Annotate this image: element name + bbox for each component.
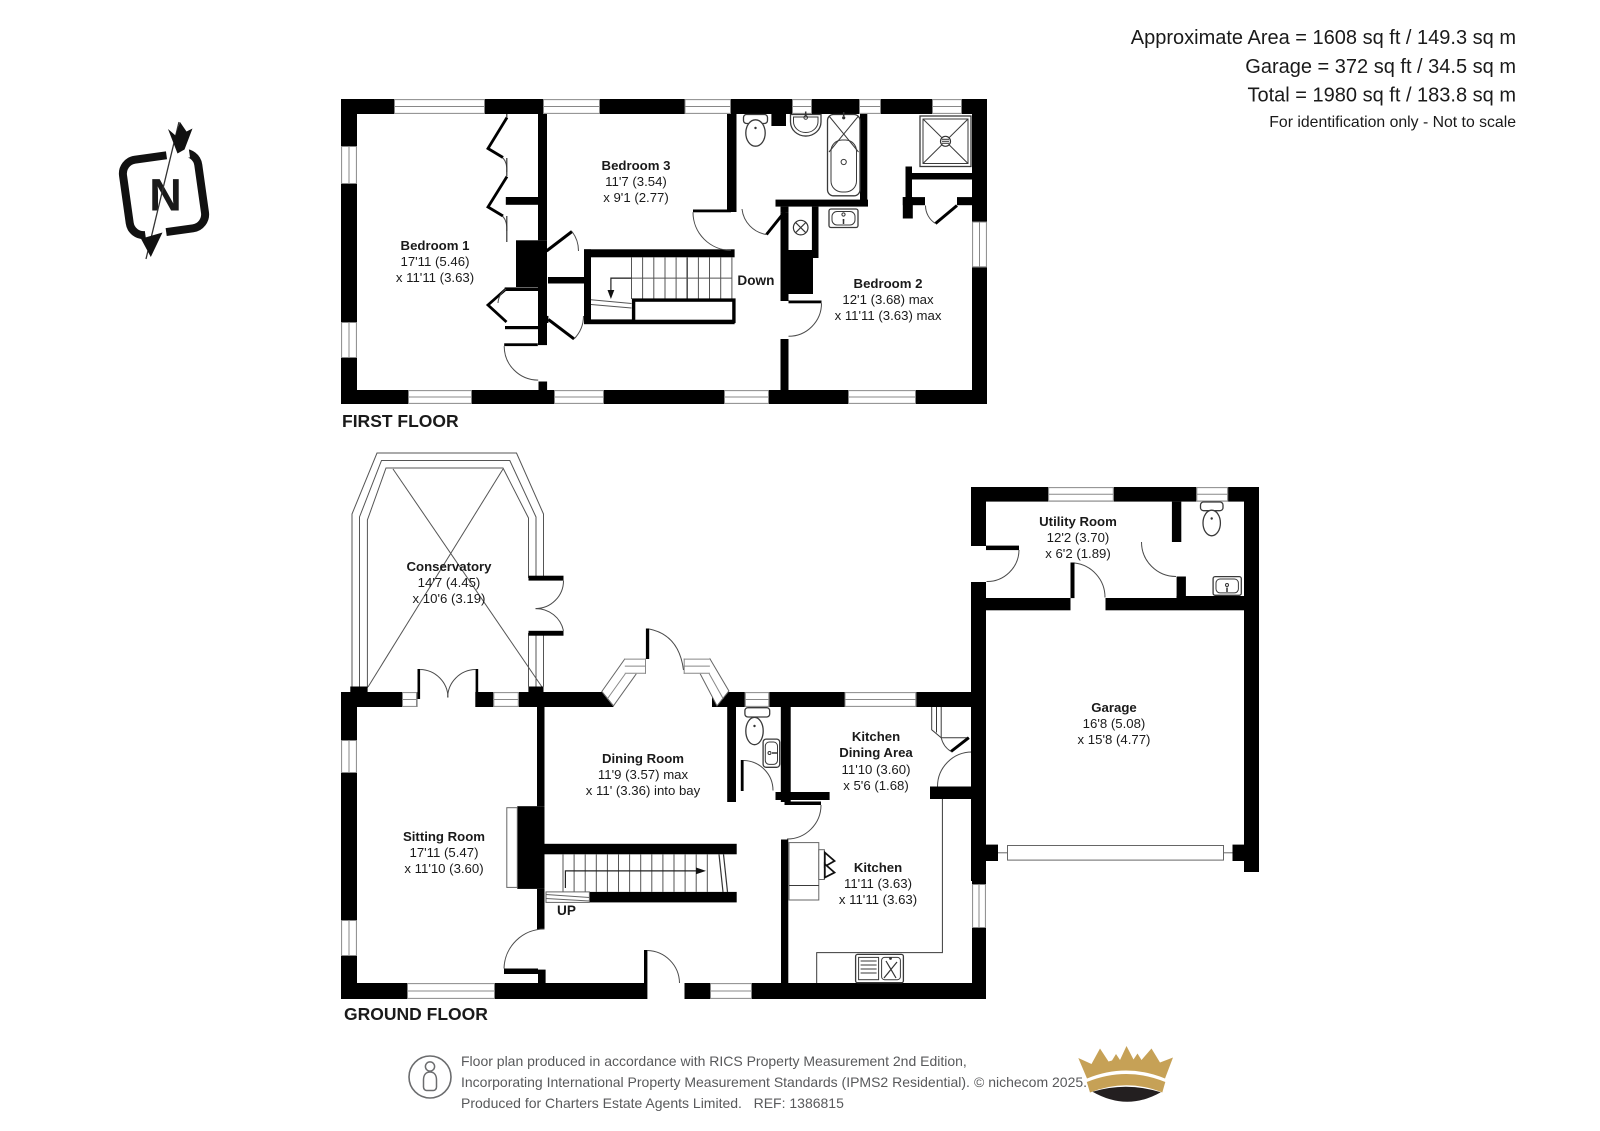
svg-text:© nichecom 2025.: © nichecom 2025.: [974, 1074, 1087, 1090]
svg-text:x 6'2 (1.89): x 6'2 (1.89): [1045, 546, 1111, 561]
svg-text:12'1 (3.68) max: 12'1 (3.68) max: [842, 292, 934, 307]
svg-text:Dining Room: Dining Room: [602, 751, 684, 766]
svg-text:GROUND FLOOR: GROUND FLOOR: [344, 1004, 488, 1024]
svg-text:11'11 (3.63): 11'11 (3.63): [844, 876, 912, 891]
svg-text:11'7 (3.54): 11'7 (3.54): [605, 174, 667, 189]
svg-text:Kitchen: Kitchen: [854, 860, 902, 875]
svg-text:14'7 (4.45): 14'7 (4.45): [418, 575, 481, 590]
svg-text:Total = 1980 sq ft / 183.8 sq: Total = 1980 sq ft / 183.8 sq m: [1248, 85, 1517, 107]
svg-text:16'8 (5.08): 16'8 (5.08): [1083, 716, 1146, 731]
svg-text:FIRST FLOOR: FIRST FLOOR: [342, 411, 459, 431]
svg-text:12'2 (3.70): 12'2 (3.70): [1047, 530, 1110, 545]
svg-text:UP: UP: [557, 903, 576, 918]
svg-text:x 15'8 (4.77): x 15'8 (4.77): [1078, 732, 1151, 747]
svg-text:x 9'1 (2.77): x 9'1 (2.77): [603, 190, 669, 205]
svg-text:x 11'10 (3.60): x 11'10 (3.60): [404, 861, 483, 876]
svg-text:x 11' (3.36) into bay: x 11' (3.36) into bay: [586, 783, 701, 798]
svg-text:For identification only - Not: For identification only - Not to scale: [1269, 114, 1516, 131]
svg-text:Incorporating International Pr: Incorporating International Property Mea…: [461, 1074, 970, 1090]
svg-text:Kitchen: Kitchen: [852, 729, 900, 744]
svg-text:Down: Down: [737, 273, 774, 288]
svg-text:Utility Room: Utility Room: [1039, 514, 1117, 529]
svg-text:Garage: Garage: [1091, 700, 1136, 715]
svg-text:Bedroom 2: Bedroom 2: [854, 276, 923, 291]
svg-text:11'10 (3.60): 11'10 (3.60): [842, 762, 911, 777]
svg-text:Garage = 372 sq ft / 34.5 sq m: Garage = 372 sq ft / 34.5 sq m: [1245, 56, 1516, 78]
svg-text:11'9 (3.57) max: 11'9 (3.57) max: [598, 767, 689, 782]
svg-text:Floor plan produced in accorda: Floor plan produced in accordance with R…: [461, 1053, 967, 1069]
svg-text:Bedroom 3: Bedroom 3: [602, 158, 671, 173]
svg-text:x 10'6 (3.19): x 10'6 (3.19): [413, 591, 486, 606]
svg-text:17'11 (5.47): 17'11 (5.47): [410, 845, 479, 860]
svg-text:x 5'6 (1.68): x 5'6 (1.68): [843, 778, 909, 793]
svg-text:Sitting Room: Sitting Room: [403, 829, 485, 844]
svg-text:Approximate Area = 1608 sq ft: Approximate Area = 1608 sq ft / 149.3 sq…: [1131, 27, 1516, 49]
svg-text:Conservatory: Conservatory: [406, 559, 492, 574]
svg-text:17'11 (5.46): 17'11 (5.46): [401, 254, 470, 269]
svg-text:x 11'11 (3.63) max: x 11'11 (3.63) max: [835, 308, 942, 323]
svg-text:Dining Area: Dining Area: [839, 745, 913, 760]
svg-text:x 11'11 (3.63): x 11'11 (3.63): [839, 892, 917, 907]
svg-text:Produced for Charters Estate A: Produced for Charters Estate Agents Limi…: [461, 1095, 844, 1111]
svg-text:x 11'11 (3.63): x 11'11 (3.63): [396, 270, 474, 285]
svg-text:Bedroom 1: Bedroom 1: [401, 238, 470, 253]
